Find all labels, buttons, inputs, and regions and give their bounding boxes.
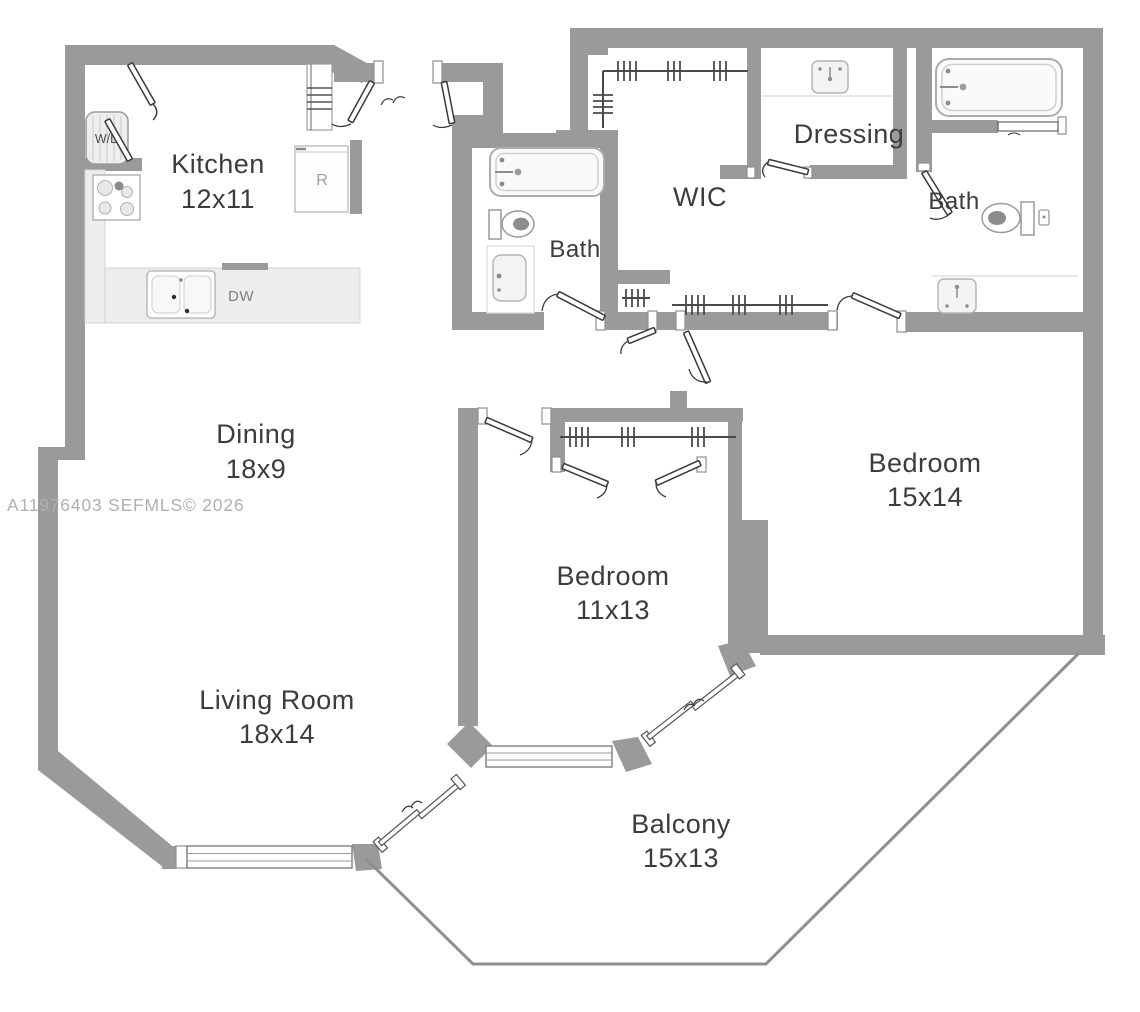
shower-door-icon [998, 122, 1058, 135]
window-icon-bedroom [486, 746, 612, 767]
pantry-shelves-icon [307, 64, 332, 130]
kitchen-label: Kitchen [171, 149, 265, 179]
bath1-label: Bath [549, 236, 600, 263]
floor-plan-page: W/D R DW [0, 0, 1140, 1012]
dressing-label: Dressing [794, 119, 905, 149]
kitchen-dims: 12x11 [181, 184, 255, 214]
bathtub-icon-center [490, 148, 604, 196]
kitchen-sink-icon [147, 271, 215, 318]
bedroom1-dims: 11x13 [576, 595, 650, 625]
toilet-icon-right [982, 202, 1049, 235]
bath2-label: Bath [928, 188, 979, 215]
refrigerator: R [295, 146, 348, 212]
sliding-door-icon-bedroom [641, 662, 745, 748]
dining-label: Dining [216, 419, 296, 449]
dining-dims: 18x9 [226, 454, 287, 484]
sink-icon-right-bath [932, 276, 1078, 313]
balcony-label: Balcony [631, 809, 731, 839]
toilet-icon-center [489, 210, 534, 239]
sink-icon-center-bath [487, 246, 534, 313]
bedroom2-label: Bedroom [868, 448, 981, 478]
balcony-dims: 15x13 [643, 843, 719, 873]
living-room-label: Living Room [199, 685, 355, 715]
sliding-door-icon-living [373, 773, 465, 854]
bedroom1-label: Bedroom [556, 561, 669, 591]
watermark-text: A11976403 SEFMLS© 2026 [7, 495, 244, 515]
living-room-dims: 18x14 [239, 719, 315, 749]
bathtub-icon-right [936, 59, 1062, 116]
floor-plan-image: W/D R DW [0, 0, 1140, 1012]
sink-icon-dressing [762, 61, 892, 96]
window-icon-living-room [176, 846, 352, 868]
dishwasher-label: DW [228, 288, 254, 305]
wic-label: WIC [673, 182, 727, 212]
bedroom2-dims: 15x14 [887, 482, 963, 512]
entry-swing-icon [381, 97, 405, 105]
range-stove-icon [93, 175, 140, 220]
refrigerator-label: R [316, 172, 328, 189]
